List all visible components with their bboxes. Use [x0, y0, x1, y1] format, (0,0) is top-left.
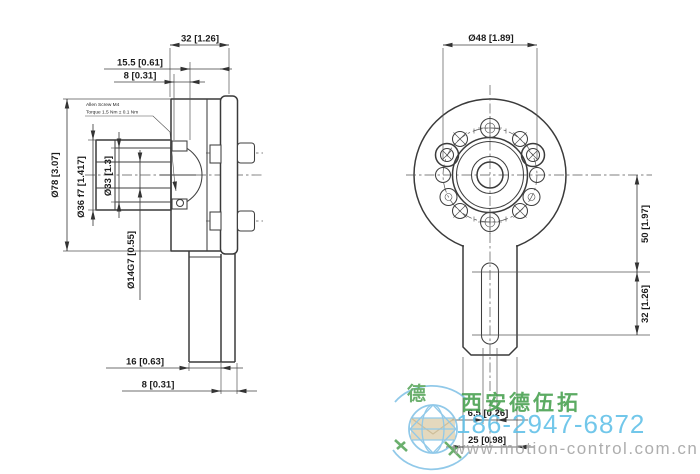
allen-screw-note: Allen Screw M4 Torque 1.5 Nm ± 0.1 Nm — [85, 102, 176, 191]
dim-depth-8-top: 8 [0.31] — [114, 71, 205, 141]
dim-label-25: 25 [0.98] — [468, 435, 506, 446]
torque-arm-side — [189, 251, 235, 362]
dim-label-dia-33: Ø33 [1.3] — [103, 156, 114, 196]
dimension-drawing: 32 [1.26] 15.5 [0.61] 8 [0.31] Ø78 [3.07… — [0, 0, 700, 474]
dim-depth-32: 32 [1.26] — [170, 34, 229, 98]
dim-length-50: 50 [1.97] — [637, 175, 651, 272]
dim-label-8-bottom: 8 [0.31] — [142, 380, 175, 391]
dim-label-32: 32 [1.26] — [181, 34, 219, 45]
note-line-2: Torque 1.5 Nm ± 0.1 Nm — [86, 110, 138, 116]
dim-label-8-top: 8 [0.31] — [124, 71, 157, 82]
technical-drawing-page: 32 [1.26] 15.5 [0.61] 8 [0.31] Ø78 [3.07… — [0, 0, 700, 474]
dim-label-32-front: 32 [1.26] — [640, 285, 651, 323]
dim-label-dia-36: Ø36 f7 [1.417] — [76, 156, 87, 218]
note-line-1: Allen Screw M4 — [86, 102, 120, 108]
clamp-ring — [160, 141, 202, 209]
dim-label-dia-48: Ø48 [1.89] — [468, 33, 513, 44]
dim-arm-16: 16 [0.63] — [106, 357, 243, 372]
dim-label-15-5: 15.5 [0.61] — [117, 58, 163, 69]
dim-slot-32: 32 [1.26] — [637, 272, 651, 335]
dim-label-dia-78: Ø78 [3.07] — [50, 152, 61, 197]
dim-label-dia-14: Ø14G7 [0.55] — [126, 231, 137, 289]
dim-dia-14: Ø14G7 [0.55] — [126, 150, 140, 300]
dim-label-16: 16 [0.63] — [126, 357, 164, 368]
dim-label-50: 50 [1.97] — [640, 205, 651, 243]
dim-label-6-5: 6.5 [0.26] — [468, 408, 509, 419]
front-view: Ø48 [1.89] 50 [1.97] 32 [1.26] 6.5 [0.26… — [406, 33, 652, 450]
side-view: 32 [1.26] 15.5 [0.61] 8 [0.31] Ø78 [3.07… — [50, 34, 264, 395]
